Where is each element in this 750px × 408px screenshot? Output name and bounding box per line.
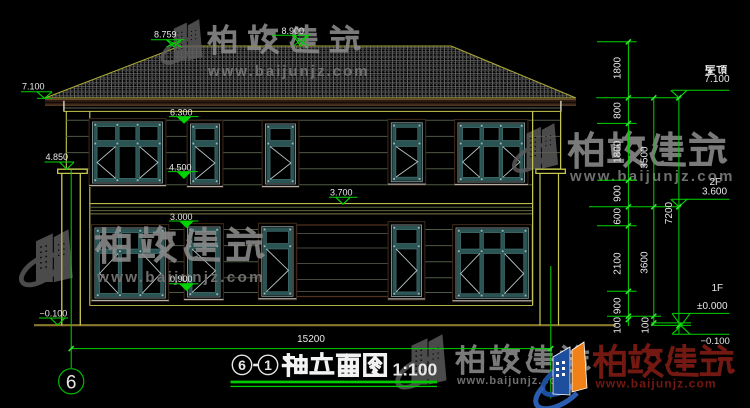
svg-text:7.100: 7.100: [705, 74, 730, 85]
svg-text:8.759: 8.759: [154, 30, 177, 40]
svg-text:1800: 1800: [613, 56, 624, 79]
svg-text:900: 900: [613, 185, 624, 202]
svg-text:7.100: 7.100: [22, 82, 45, 92]
svg-text:7200: 7200: [664, 201, 675, 224]
svg-text:1: 1: [264, 357, 272, 373]
svg-text:6: 6: [66, 373, 77, 394]
svg-text:6.300: 6.300: [170, 108, 193, 118]
svg-text:8.900: 8.900: [282, 26, 305, 36]
svg-text:3.600: 3.600: [702, 187, 727, 198]
svg-text:100: 100: [641, 317, 652, 334]
svg-text:1800: 1800: [613, 140, 624, 163]
svg-text:2100: 2100: [613, 252, 624, 275]
svg-text:±0.000: ±0.000: [697, 301, 728, 312]
svg-text:4.500: 4.500: [169, 163, 192, 173]
svg-text:3500: 3500: [640, 146, 651, 169]
svg-text:1F: 1F: [712, 283, 724, 294]
svg-text:4.850: 4.850: [46, 152, 69, 162]
svg-text:6: 6: [238, 357, 246, 373]
svg-text:1:100: 1:100: [393, 360, 438, 380]
svg-text:800: 800: [613, 102, 624, 119]
svg-text:100: 100: [613, 317, 624, 334]
svg-text:3600: 3600: [640, 251, 651, 274]
svg-text:3.700: 3.700: [330, 188, 353, 198]
svg-text:0.900: 0.900: [170, 274, 193, 284]
svg-text:900: 900: [613, 297, 624, 314]
svg-text:www.baijunjz.com: www.baijunjz.com: [595, 377, 717, 391]
svg-text:www.baijunjz.com: www.baijunjz.com: [207, 63, 369, 80]
svg-text:600: 600: [613, 208, 624, 225]
svg-text:15200: 15200: [297, 334, 325, 345]
svg-text:−0.100: −0.100: [40, 309, 68, 319]
